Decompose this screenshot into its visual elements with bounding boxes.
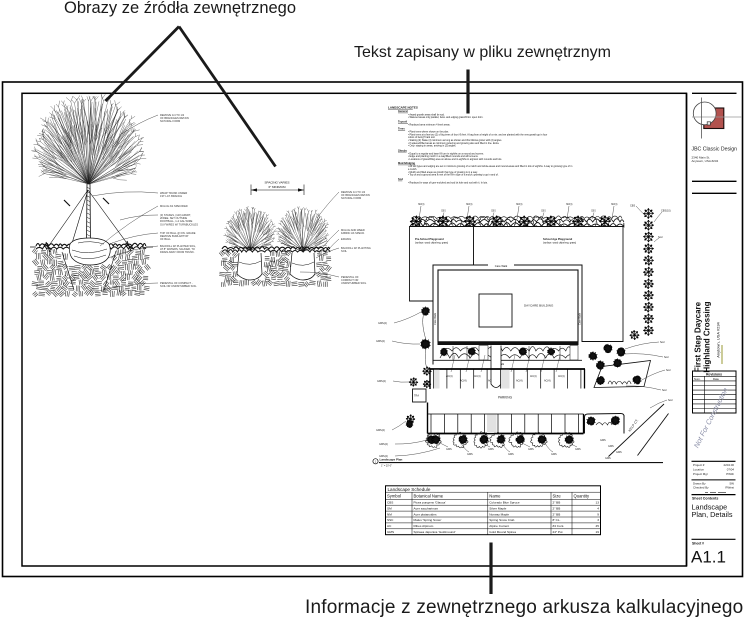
- svg-text:GMS: GMS: [508, 453, 514, 456]
- svg-text:CBS: CBS: [591, 211, 596, 213]
- svg-text:AC(4): AC(4): [544, 380, 551, 383]
- svg-text:SSC: SSC: [387, 518, 394, 522]
- svg-text:GUYWIRES W/ TURNBUCKLES: GUYWIRES W/ TURNBUCKLES: [160, 222, 198, 226]
- svg-text:Spiraea Japonica 'Goldmound': Spiraea Japonica 'Goldmound': [414, 530, 456, 534]
- svg-text:2″ BB: 2″ BB: [553, 506, 561, 510]
- svg-text:• Locations of grass/filling a: • Locations of grass/filling area on abo…: [408, 158, 502, 161]
- svg-text:Colorado Blue Spruce: Colorado Blue Spruce: [489, 501, 520, 505]
- svg-text:Revisions: Revisions: [706, 372, 722, 376]
- svg-text:Sod: Sod: [668, 399, 673, 402]
- svg-text:Topsoil: Topsoil: [398, 120, 407, 124]
- svg-text:NM: NM: [387, 512, 392, 516]
- svg-text:AC(4): AC(4): [474, 375, 481, 378]
- svg-text:Sod: Sod: [664, 356, 669, 359]
- svg-text:Silver Maple: Silver Maple: [489, 506, 506, 510]
- svg-text:Picea pungens 'Glauca': Picea pungens 'Glauca': [414, 501, 447, 505]
- svg-text:A1.1: A1.1: [691, 548, 726, 567]
- svg-text:Size: Size: [553, 494, 562, 499]
- svg-text:MULCH AS SPECIFIED: MULCH AS SPECIFIED: [160, 204, 188, 208]
- svg-text:Drawn By: Drawn By: [693, 481, 706, 485]
- svg-text:Malus 'Spring Snow': Malus 'Spring Snow': [414, 518, 442, 522]
- svg-text:Sod: Sod: [660, 341, 665, 344]
- svg-text:GMS: GMS: [528, 448, 534, 451]
- svg-text:Alpine Current: Alpine Current: [489, 524, 509, 528]
- svg-text:GMS: GMS: [467, 453, 473, 456]
- svg-text:2204.00: 2204.00: [724, 463, 735, 467]
- svg-text:3: 3: [597, 518, 599, 522]
- svg-text:Sod: Sod: [666, 369, 671, 372]
- svg-text:NM(4): NM(4): [611, 204, 618, 206]
- svg-text:Landscape Schedule: Landscape Schedule: [388, 487, 431, 492]
- svg-text:PARKING: PARKING: [498, 396, 513, 400]
- svg-text:• Only: staying in areas, arri: • Only: staying in areas, arriving in (2…: [408, 145, 456, 148]
- svg-text:AC(4): AC(4): [558, 375, 565, 378]
- svg-text:AC(4): AC(4): [516, 380, 523, 383]
- svg-text:GMS(4): GMS(4): [376, 429, 385, 432]
- svg-text:GMS: GMS: [446, 448, 452, 451]
- svg-text:School Age Playground: School Age Playground: [543, 237, 573, 241]
- svg-text:6″ MINIMUM: 6″ MINIMUM: [268, 185, 286, 189]
- svg-text:9: 9: [597, 512, 599, 516]
- svg-text:Gold Mound Spirea: Gold Mound Spirea: [489, 530, 516, 534]
- svg-text:NM(4): NM(4): [566, 204, 573, 206]
- svg-text:1ST LAT. BRANCH: 1ST LAT. BRANCH: [160, 194, 182, 198]
- svg-text:• Watered areas only parallel,: • Watered areas only parallel, betw. and…: [408, 116, 484, 119]
- svg-text:Location: Location: [693, 468, 704, 472]
- svg-text:Pre-School Playground: Pre-School Playground: [415, 237, 444, 241]
- svg-text:GMS: GMS: [575, 448, 581, 451]
- svg-text:SPACING VARIES: SPACING VARIES: [265, 181, 290, 185]
- svg-text:2″ BB: 2″ BB: [553, 512, 561, 516]
- svg-text:4: 4: [597, 506, 599, 510]
- svg-text:Plan, Details: Plan, Details: [692, 510, 733, 519]
- svg-text:CBS: CBS: [541, 211, 546, 213]
- svg-text:Botanical Name: Botanical Name: [414, 494, 444, 499]
- svg-text:1″ = 20′-0″: 1″ = 20′-0″: [381, 464, 392, 467]
- svg-text:AC(4): AC(4): [460, 380, 467, 383]
- svg-text:Name: Name: [489, 494, 501, 499]
- svg-text:#4 Cont.: #4 Cont.: [553, 524, 565, 528]
- svg-text:PWith: PWith: [726, 472, 734, 476]
- svg-text:Project #: Project #: [693, 463, 705, 467]
- svg-text:CBS: CBS: [491, 211, 496, 213]
- svg-text:LANDSCAPE NOTES: LANDSCAPE NOTES: [388, 106, 418, 110]
- svg-text:45: 45: [596, 524, 600, 528]
- svg-text:Shrubs: Shrubs: [398, 148, 407, 152]
- svg-text:• Replaced in ways of type-mul: • Replaced in ways of type-mulched and s…: [408, 181, 488, 184]
- svg-text:AC: AC: [387, 524, 392, 528]
- svg-text:GMS(4): GMS(4): [378, 322, 387, 325]
- svg-text:CBS: CBS: [441, 211, 446, 213]
- svg-text:Sheet Contents: Sheet Contents: [692, 497, 718, 501]
- svg-text:Sod: Sod: [662, 389, 667, 392]
- svg-text:TRA: TRA: [414, 395, 419, 398]
- svg-text:Project Mgr: Project Mgr: [693, 472, 708, 476]
- svg-text:(surface: wood chips/eng. gras: (surface: wood chips/eng. grass): [543, 242, 576, 245]
- svg-text:GMS: GMS: [605, 457, 611, 460]
- svg-text:SW: SW: [729, 481, 734, 485]
- svg-text:Care Walk: Care Walk: [433, 312, 437, 325]
- svg-text:Anytown, USA #234: Anytown, USA #234: [716, 321, 721, 357]
- svg-text:Sod: Sod: [398, 177, 403, 181]
- svg-text:Trees: Trees: [398, 127, 405, 131]
- svg-text:NM(4): NM(4): [516, 204, 523, 206]
- svg-text:Acer saccharinum: Acer saccharinum: [414, 506, 439, 510]
- svg-text:NM(4): NM(4): [466, 204, 473, 206]
- svg-text:NATURAL FORM: NATURAL FORM: [160, 119, 180, 123]
- svg-text:NATURAL FORM: NATURAL FORM: [341, 196, 361, 200]
- svg-text:Anytown, USA #234: Anytown, USA #234: [692, 159, 719, 163]
- svg-text:Acer platanoides: Acer platanoides: [414, 512, 437, 516]
- svg-text:CBS(10): CBS(10): [661, 210, 671, 213]
- svg-text:AC(4): AC(4): [530, 375, 537, 378]
- svg-text:SOIL OR UNDISTURBED SOIL: SOIL OR UNDISTURBED SOIL: [160, 284, 197, 288]
- svg-text:8′ CL.: 8′ CL.: [553, 518, 561, 522]
- svg-text:EDGING: EDGING: [341, 237, 351, 241]
- svg-text:FABRIC AS SPECD.: FABRIC AS SPECD.: [341, 231, 365, 235]
- svg-text:First Step Daycare: First Step Daycare: [694, 301, 703, 372]
- svg-text:SOIL: SOIL: [341, 249, 347, 253]
- svg-text:NM(4): NM(4): [418, 204, 425, 206]
- svg-text:Quantity: Quantity: [574, 494, 591, 499]
- svg-text:Landscape Plan: Landscape Plan: [380, 458, 403, 462]
- svg-text:RWest: RWest: [725, 486, 734, 490]
- svg-text:DAYCARE BUILDING: DAYCARE BUILDING: [524, 304, 554, 308]
- svg-text:CBS: CBS: [630, 205, 635, 208]
- svg-text:Num.: Num.: [694, 377, 701, 381]
- svg-text:CBS: CBS: [387, 501, 393, 505]
- svg-text:Spring Snow Crab: Spring Snow Crab: [489, 518, 514, 522]
- svg-text:(surface: wood chips/eng. gras: (surface: wood chips/eng. grass): [415, 242, 448, 245]
- svg-text:DRAIN AWAY FROM TRUNK.: DRAIN AWAY FROM TRUNK.: [160, 250, 195, 254]
- svg-text:07/04: 07/04: [727, 468, 735, 472]
- svg-text:Highland Crossing: Highland Crossing: [703, 301, 712, 372]
- svg-text:GMS: GMS: [608, 445, 614, 448]
- svg-text:General: General: [398, 109, 408, 113]
- svg-text:Ribes Alpinum: Ribes Alpinum: [414, 524, 434, 528]
- svg-text:GMS(4): GMS(4): [379, 443, 388, 446]
- svg-text:GMS: GMS: [616, 451, 622, 454]
- svg-text:• All soil types and edging ar: • All soil types and edging are set in m…: [408, 165, 573, 168]
- svg-text:GMS: GMS: [551, 453, 557, 456]
- svg-text:• Top of and a ground area is: • Top of and a ground area is met of the…: [408, 174, 499, 177]
- svg-text:Care Walk: Care Walk: [495, 264, 508, 268]
- svg-text:2″ BB: 2″ BB: [553, 501, 561, 505]
- svg-text:• Replaced area minimum 4 leve: • Replaced area minimum 4 level areas.: [408, 124, 451, 127]
- svg-text:13: 13: [596, 501, 600, 505]
- svg-text:GMS(4): GMS(4): [376, 340, 385, 343]
- svg-text:JBC Classic Design: JBC Classic Design: [692, 147, 738, 153]
- svg-text:GMS: GMS: [488, 448, 494, 451]
- svg-text:GMS(4): GMS(4): [377, 380, 386, 383]
- svg-text:GMS: GMS: [387, 530, 394, 534]
- svg-text:UNDISTURBED SOIL: UNDISTURBED SOIL: [341, 281, 367, 285]
- svg-text:SM: SM: [387, 506, 392, 510]
- svg-text:Sheet #: Sheet #: [692, 541, 704, 545]
- svg-text:Checked By: Checked By: [693, 486, 709, 490]
- svg-text:OF BALL: OF BALL: [160, 237, 171, 241]
- svg-text:GMS: GMS: [600, 439, 606, 442]
- svg-text:Norway Maple: Norway Maple: [489, 512, 509, 516]
- svg-text:24″ Pot: 24″ Pot: [553, 530, 563, 534]
- svg-text:Sod: Sod: [658, 236, 663, 239]
- svg-text:19: 19: [596, 530, 600, 534]
- svg-text:Symbol: Symbol: [387, 494, 401, 499]
- svg-text:Date: Date: [713, 377, 719, 381]
